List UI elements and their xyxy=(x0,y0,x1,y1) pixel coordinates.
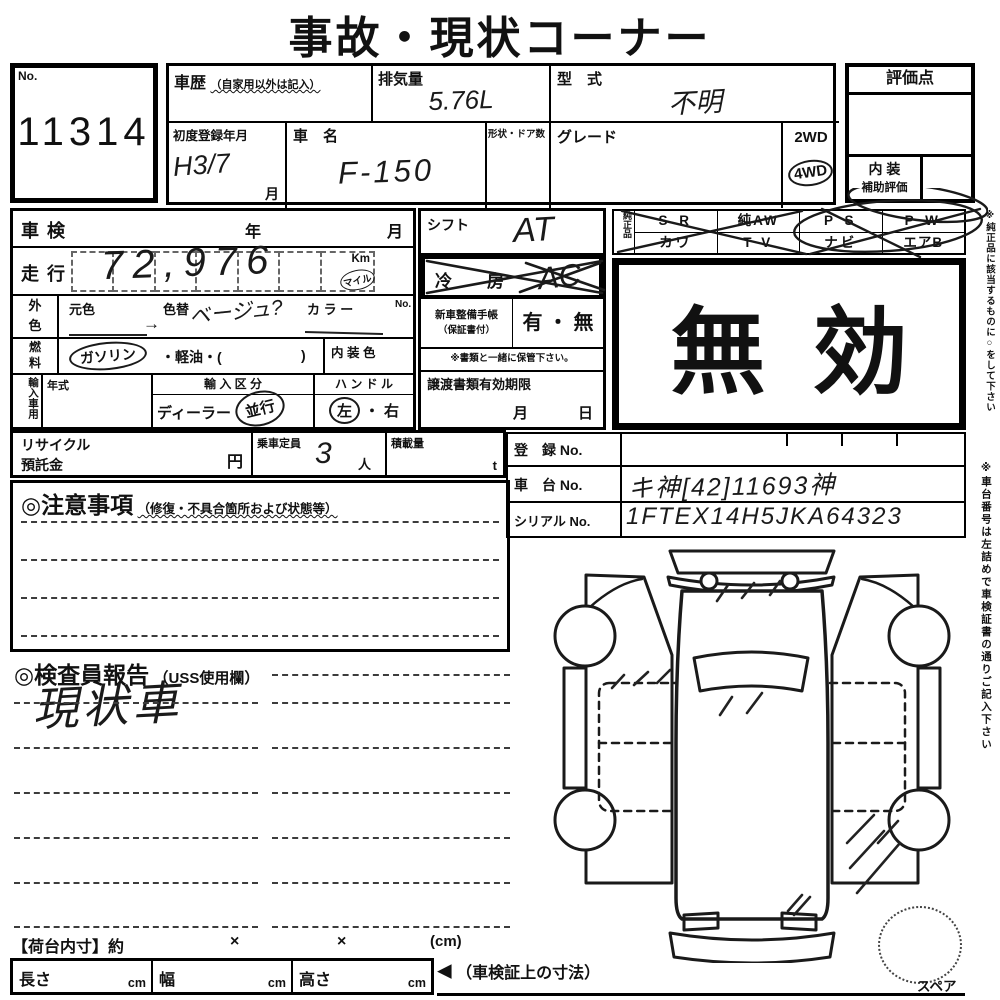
width-label: 幅 xyxy=(159,966,175,990)
score-interior-cell: 内 装 補助評価 xyxy=(849,154,923,199)
handle-separator: ・ xyxy=(364,403,379,420)
drive-cell: 2WD 4WD xyxy=(783,123,839,208)
fuel-gasoline-circle: ガソリン xyxy=(68,339,148,374)
ruled-line xyxy=(21,635,499,637)
shape-doors-cell: 形状・ドア数 xyxy=(487,123,551,208)
handle-left-circle: 左 xyxy=(329,397,360,424)
genuine-tv: T V xyxy=(718,233,801,254)
left-block: 車検 年 月 走行 Km マイル 72,976 xyxy=(10,208,416,430)
exterior-label-top: 外 xyxy=(28,298,41,313)
exterior-color-row: 外 色 元色 色替 ベージュ? カ ラ ー No. → xyxy=(13,296,413,339)
fuel-row: 燃 料 ガソリン ・軽油・( ) 内 装 色 xyxy=(13,339,413,375)
grade-cell: グレード xyxy=(551,123,783,208)
height-unit: cm xyxy=(408,976,426,990)
inspection-label: 車検 xyxy=(21,217,73,243)
first-reg-label: 初度登録年月 xyxy=(173,125,281,144)
ruled-line xyxy=(21,597,499,599)
vehicle-info-table: 車歴 （自家用以外は記入） 排気量 5.76L 型 式 不明 初度登録年月 H3… xyxy=(166,63,836,205)
genuine-pw: P W xyxy=(883,211,965,232)
ruled-line xyxy=(272,882,510,884)
blank-line xyxy=(305,331,383,335)
genuine-grid: S R 純AW P S P W カワ T V ナビ エアB xyxy=(635,211,964,253)
side-note-chassis: ※車台番号は左詰めで車検証書の通りご記入下さい xyxy=(979,462,994,872)
lot-number-box: No. 11314 xyxy=(10,63,158,203)
aircon-row: 冷 房 AC xyxy=(421,255,603,299)
import-class-cell: 輸 入 区 分 ディーラー 並行 xyxy=(153,375,315,433)
shift-row: シフト AT xyxy=(421,211,603,255)
history-cell: 車歴 （自家用以外は記入） xyxy=(169,66,373,123)
fuel-gasoline: ガソリン xyxy=(79,346,136,367)
genuine-leather: カワ xyxy=(635,233,718,254)
displacement-cell: 排気量 5.76L xyxy=(373,66,551,123)
caution-note: （修復・不具合箇所および状態等） xyxy=(138,502,338,516)
interior-color-cell: 内 装 色 xyxy=(323,339,413,373)
middle-column: シフト AT 冷 房 AC 新車整備手帳 （保証書付） 有 ・ 無 ※書類と一緒… xyxy=(418,208,606,430)
ruled-line xyxy=(272,792,510,794)
caution-heading: ◎注意事項 xyxy=(21,492,133,518)
color-no-label: No. xyxy=(395,299,411,310)
exterior-label-bottom: 色 xyxy=(28,318,41,333)
grade-label: グレード xyxy=(557,126,775,147)
ruled-line xyxy=(14,702,258,704)
recycle-label-1: リサイクル xyxy=(21,435,251,455)
color-repaint-label: 色替 xyxy=(163,299,189,318)
width-unit: cm xyxy=(268,976,286,990)
serial-no-value-cell: 1FTEX14H5JKA64323 xyxy=(620,503,964,537)
registry-table: 登 録 No. 車 台 No. キ神[42]11693神 シリアル No. 1F… xyxy=(506,432,966,538)
interior-color-label: 内 装 色 xyxy=(331,342,375,361)
height-label: 高さ xyxy=(299,966,331,990)
car-name-cell: 車 名 F-150 xyxy=(287,123,487,208)
void-char-2: 効 xyxy=(812,276,907,413)
fuel-label-top: 燃 xyxy=(29,340,41,354)
notebook-label-1: 新車整備手帳 xyxy=(421,307,512,322)
tick-divider xyxy=(841,434,843,446)
notebook-note: ※書類と一緒に保管下さい。 xyxy=(421,349,603,372)
unit-km: Km xyxy=(351,253,370,265)
ruled-line xyxy=(21,521,499,523)
genuine-aw: 純AW xyxy=(718,211,801,232)
color-repaint-value: ベージュ? xyxy=(188,291,284,331)
car-name-value: F-150 xyxy=(292,151,479,193)
recycle-deposit-cell: リサイクル 預託金 円 xyxy=(13,433,253,475)
void-char-1: 無 xyxy=(670,276,765,413)
auction-sheet: 事故・現状コーナー No. 11314 車歴 （自家用以外は記入） 排気量 5.… xyxy=(0,0,1000,1000)
transfer-label: 譲渡書類有効期限 xyxy=(427,374,603,393)
page-title: 事故・現状コーナー xyxy=(0,2,1000,66)
score-box: 評価点 内 装 補助評価 xyxy=(845,63,975,203)
height-cell: 高さ cm xyxy=(293,961,431,992)
transfer-row: 譲渡書類有効期限 月 日 xyxy=(421,370,603,427)
ruled-line xyxy=(272,674,510,676)
length-cell: 長さ cm xyxy=(13,961,153,992)
displacement-value: 5.76L xyxy=(378,82,545,119)
aircon-strike-marks xyxy=(424,258,606,296)
reg-no-value-cell xyxy=(620,434,964,465)
first-reg-cell: 初度登録年月 H3/7 月 xyxy=(169,123,287,208)
import-parallel: 並行 xyxy=(244,398,277,422)
ruled-line xyxy=(21,559,499,561)
notebook-label-cell: 新車整備手帳 （保証書付） xyxy=(421,299,513,347)
shift-label: シフト xyxy=(427,215,469,235)
dims-note: （車検証上の寸法） xyxy=(456,965,600,982)
ruled-line xyxy=(14,837,258,839)
load-cell: 積載量 t xyxy=(387,433,503,475)
genuine-navi: ナビ xyxy=(800,233,883,254)
history-label: 車歴 xyxy=(174,75,206,92)
score-interior-sub: 補助評価 xyxy=(849,179,920,195)
import-dealer: ディーラー xyxy=(157,405,231,422)
ruled-line xyxy=(272,702,510,704)
recycle-yen: 円 xyxy=(227,448,243,472)
bed-unit: (cm) xyxy=(430,933,462,950)
ruled-line xyxy=(14,882,258,884)
shape-doors-label: 形状・ドア数 xyxy=(488,126,548,140)
import-class-label: 輸 入 区 分 xyxy=(153,375,313,395)
mileage-value: 72,976 xyxy=(100,238,278,289)
bed-x2: × xyxy=(337,933,346,951)
shift-value: AT xyxy=(512,210,555,251)
void-stamp-box: 無 効 xyxy=(612,258,966,430)
ruled-line xyxy=(14,926,258,928)
fuel-label-bottom: 料 xyxy=(29,356,41,370)
handle-cell: ハ ン ド ル 左 ・ 右 xyxy=(315,375,413,433)
chassis-no-value: キ神[42]11693神 xyxy=(628,465,837,505)
drive-2wd: 2WD xyxy=(783,129,839,146)
tick-divider xyxy=(786,434,788,446)
genuine-airbag: エアB xyxy=(883,233,965,254)
chassis-no-label: 車 台 No. xyxy=(514,475,582,495)
unit-mile-circle: マイル xyxy=(339,267,377,294)
notebook-row: 新車整備手帳 （保証書付） 有 ・ 無 xyxy=(421,299,603,349)
unit-cell: Km マイル xyxy=(320,251,375,292)
length-unit: cm xyxy=(128,976,146,990)
mileage-label: 走行 xyxy=(21,260,73,286)
first-reg-value: H3/7 xyxy=(172,148,231,183)
import-year-label: 年式 xyxy=(47,377,69,393)
drive-4wd: 4WD xyxy=(793,162,828,183)
ruled-line xyxy=(14,747,258,749)
genuine-parts-table: 純正品 S R 純AW P S P W カワ T V ナビ エアB xyxy=(612,209,966,255)
blank-line xyxy=(69,334,147,336)
lot-number-value: 11314 xyxy=(15,110,153,155)
load-unit: t xyxy=(493,458,497,473)
transfer-day: 日 xyxy=(578,402,593,423)
load-label: 積載量 xyxy=(391,435,424,451)
bed-label: 【荷台内寸】約 xyxy=(12,933,124,957)
ruled-line xyxy=(272,837,510,839)
chassis-no-row: 車 台 No. キ神[42]11693神 xyxy=(508,467,964,503)
car-name-label: 車 名 xyxy=(293,125,479,146)
fuel-close-paren: ) xyxy=(301,347,306,363)
tick-divider xyxy=(896,434,898,446)
capacity-label: 乗車定員 xyxy=(257,435,301,451)
digit-cell xyxy=(278,251,321,292)
capacity-cell: 乗車定員 3 人 xyxy=(253,433,387,475)
side-note-genuine: ※純正品に該当するものに○をして下さい xyxy=(982,210,996,465)
history-note: （自家用以外は記入） xyxy=(210,79,320,91)
import-row: 輸入車用 年式 輸 入 区 分 ディーラー 並行 ハ ン ド ル 左 ・ 右 xyxy=(13,375,413,433)
score-header: 評価点 xyxy=(849,67,971,95)
color-name-label: カ ラ ー xyxy=(307,299,353,318)
inspection-month: 月 xyxy=(387,218,403,242)
import-year-cell: 年式 xyxy=(43,375,153,433)
genuine-label: 純正品 xyxy=(614,211,635,253)
exterior-color-label: 外 色 xyxy=(13,296,59,337)
score-value-cell xyxy=(922,154,971,199)
inspector-report: ◎検査員報告 （USS使用欄） 現状車 xyxy=(10,656,510,934)
mileage-row: 走行 Km マイル 72,976 xyxy=(13,248,413,296)
left-arrow-icon: ◀ xyxy=(437,961,452,982)
ruled-line xyxy=(14,792,258,794)
fuel-label: 燃 料 xyxy=(13,339,59,373)
ruled-line xyxy=(272,747,510,749)
import-label: 輸入車用 xyxy=(13,375,43,433)
color-original-label: 元色 xyxy=(69,299,95,318)
first-reg-unit: 月 xyxy=(265,184,279,204)
notebook-label-2: （保証書付） xyxy=(421,322,512,336)
ruled-line xyxy=(272,926,510,928)
model-cell: 型 式 不明 xyxy=(551,66,839,123)
lot-number-label: No. xyxy=(18,69,37,83)
serial-no-label: シリアル No. xyxy=(514,511,590,530)
drive-4wd-circle: 4WD xyxy=(787,157,836,189)
serial-no-row: シリアル No. 1FTEX14H5JKA64323 xyxy=(508,503,964,537)
capacity-value: 3 xyxy=(315,437,332,471)
fuel-others: ・軽油・( xyxy=(161,347,222,367)
bed-x1: × xyxy=(230,933,239,951)
length-label: 長さ xyxy=(19,966,51,990)
width-cell: 幅 cm xyxy=(153,961,293,992)
recycle-label-2: 預託金 xyxy=(21,455,251,475)
car-diagram xyxy=(542,543,962,963)
reg-no-label: 登 録 No. xyxy=(514,440,582,460)
caution-box: ◎注意事項 （修復・不具合箇所および状態等） xyxy=(10,480,510,652)
color-arrow: → xyxy=(143,314,160,334)
spare-tire-circle xyxy=(878,906,962,984)
reg-no-row: 登 録 No. xyxy=(508,434,964,467)
handle-right: 右 xyxy=(384,403,399,420)
spare-label: スペア xyxy=(917,975,957,995)
handle-left: 左 xyxy=(337,403,352,420)
score-interior-label: 内 装 xyxy=(849,159,920,179)
recycle-row: リサイクル 預託金 円 乗車定員 3 人 積載量 t xyxy=(10,430,506,478)
dims-table: 長さ cm 幅 cm 高さ cm xyxy=(10,958,434,995)
capacity-unit: 人 xyxy=(358,454,371,473)
chassis-no-value-cell: キ神[42]11693神 xyxy=(620,467,964,501)
import-handle-label: ハ ン ド ル xyxy=(315,375,413,395)
notebook-options: 有 ・ 無 xyxy=(513,299,603,347)
transfer-month: 月 xyxy=(513,402,528,423)
serial-no-value: 1FTEX14H5JKA64323 xyxy=(626,503,903,531)
genuine-ps: P S xyxy=(800,211,883,232)
genuine-sr: S R xyxy=(635,211,718,232)
unit-mile: マイル xyxy=(343,273,373,290)
